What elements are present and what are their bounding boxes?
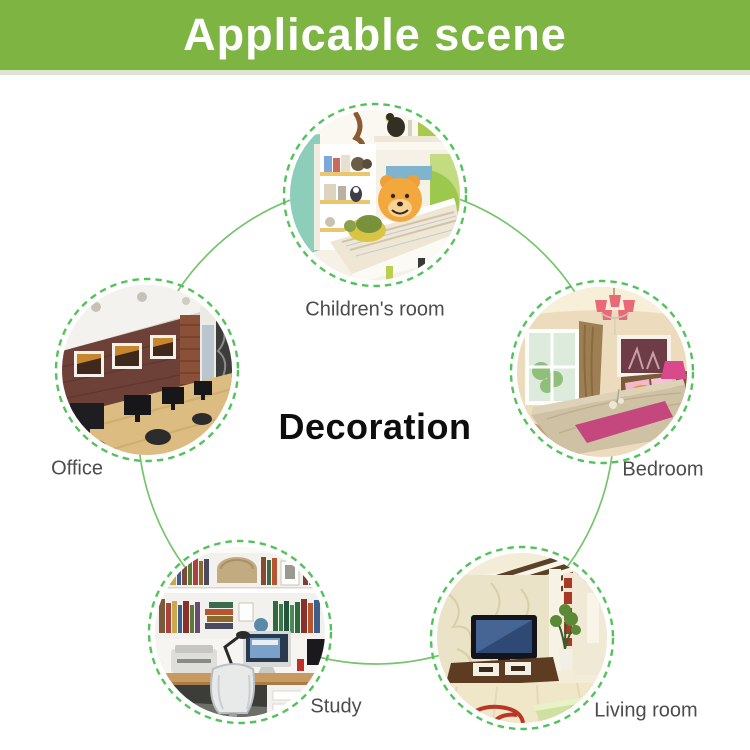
childrens-room-illustration [290,110,460,280]
scene-label-childrens-room: Children's room [305,299,444,322]
study-illustration [155,547,325,717]
scene-label-study: Study [310,696,361,719]
scene-label-office: Office [51,458,103,481]
living-room-illustration [437,553,607,723]
scene-photo-study [155,547,325,717]
page: Applicable scene [0,0,750,750]
scene-label-bedroom: Bedroom [622,459,703,482]
center-title: Decoration [278,406,471,448]
scene-photo-childrens-room [290,110,460,280]
scene-photo-bedroom [517,287,687,457]
scene-photo-living-room [437,553,607,723]
scene-label-living-room: Living room [594,700,697,723]
bedroom-illustration [517,287,687,457]
scene-photo-office [62,285,232,455]
header-banner: Applicable scene [0,0,750,75]
page-title: Applicable scene [183,9,567,61]
office-illustration [62,285,232,455]
